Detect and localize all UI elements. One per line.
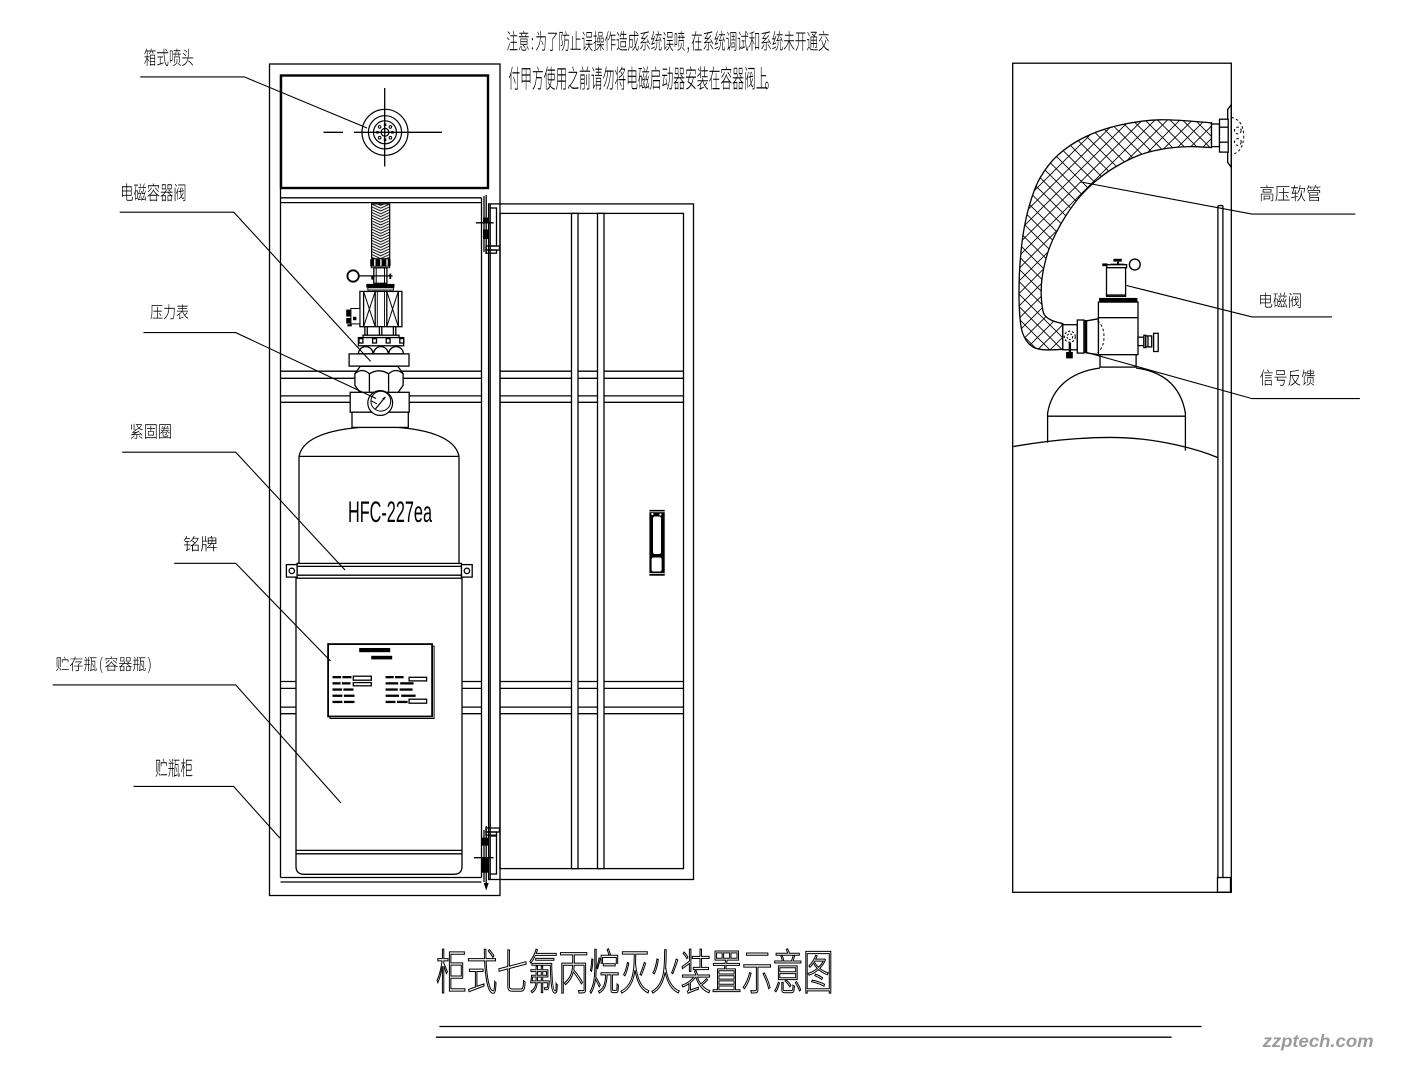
svg-text:HFC-227ea: HFC-227ea	[348, 496, 432, 529]
svg-text:zzptech.com: zzptech.com	[1262, 1031, 1374, 1051]
